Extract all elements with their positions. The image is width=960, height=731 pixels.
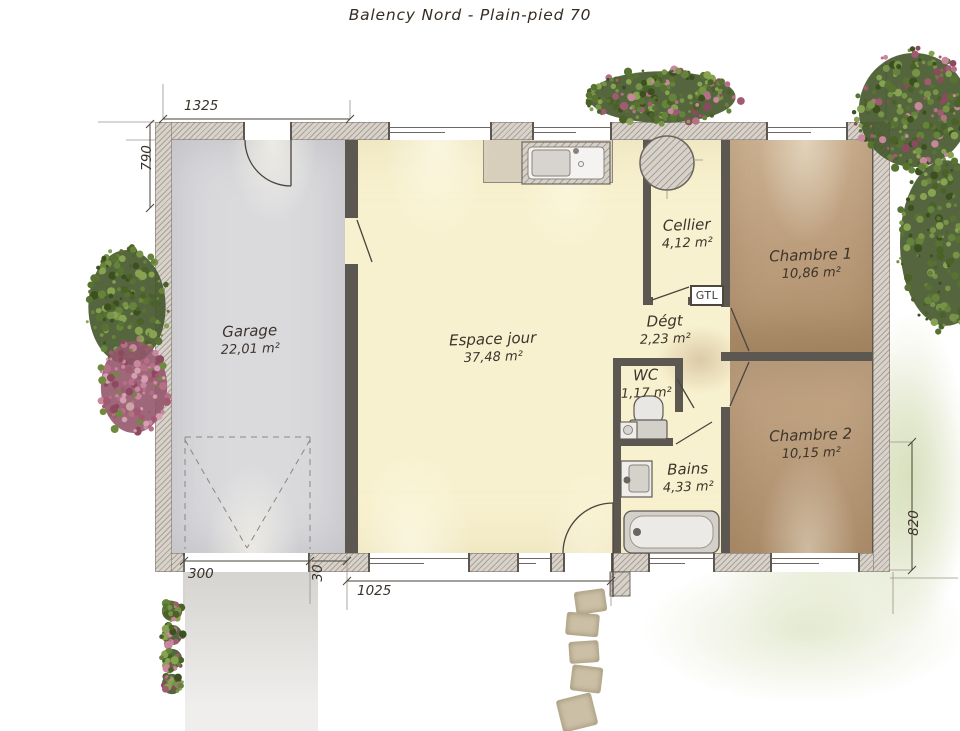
room-area: 4,33 m²	[645, 478, 732, 498]
wall-cellier-bottom	[643, 297, 653, 305]
room-label-bains: Bains 4,33 m²	[644, 459, 731, 498]
room-area: 2,23 m²	[620, 330, 711, 350]
stepping-stone	[565, 612, 600, 638]
wall-chambre-divider	[721, 352, 872, 361]
room-label-degagement: Dégt 2,23 m²	[619, 310, 710, 350]
door-gap-garage	[345, 218, 358, 264]
gtl-box: GTL	[690, 285, 724, 306]
light-glow	[545, 465, 635, 553]
window	[517, 553, 552, 572]
room-label-chambre1: Chambre 1 10,86 m²	[751, 244, 870, 284]
dimension-garage-door: 300	[188, 566, 214, 582]
kitchen-counter	[483, 140, 613, 183]
room-area: 1,17 m²	[608, 384, 685, 404]
light-glow	[758, 140, 853, 245]
wall-garage-divider	[345, 140, 358, 553]
room-name: WC	[607, 365, 684, 387]
driveway	[185, 572, 318, 731]
room-name: Chambre 1	[751, 244, 870, 268]
wall-wc-bottom	[613, 438, 673, 446]
room-area: 4,12 m²	[643, 234, 732, 254]
light-glow	[205, 462, 300, 553]
stepping-stone	[556, 692, 599, 731]
exterior-wall-left	[155, 122, 172, 572]
dimension-left: 790	[139, 141, 155, 175]
light-glow	[228, 140, 318, 225]
exterior-wall-right	[873, 122, 890, 572]
dimension-top-left: 1325	[184, 98, 218, 114]
room-label-espace-jour: Espace jour 37,48 m²	[427, 328, 558, 369]
window	[388, 122, 492, 140]
stepping-stone	[570, 664, 604, 694]
light-glow	[382, 140, 492, 240]
stepping-stone	[568, 640, 599, 664]
room-label-cellier: Cellier 4,12 m²	[642, 214, 731, 253]
entrance-step	[610, 572, 630, 596]
dimension-facade: 1025	[357, 583, 391, 599]
light-glow	[352, 450, 472, 553]
window	[532, 122, 612, 140]
light-glow	[758, 450, 858, 553]
window	[766, 122, 848, 140]
room-label-chambre2: Chambre 2 10,15 m²	[751, 424, 870, 464]
window	[648, 553, 715, 572]
page-title: Balency Nord - Plain-pied 70	[340, 6, 600, 24]
window	[770, 553, 860, 572]
dimension-right: 820	[906, 506, 922, 540]
garage-service-door-opening	[243, 122, 292, 140]
light-glow	[520, 183, 615, 253]
stepping-stone	[574, 588, 608, 615]
dimension-pier: 30	[310, 560, 326, 586]
floor-plan: GTL	[0, 0, 960, 731]
room-label-wc: WC 1,17 m²	[607, 365, 684, 404]
entrance-door-opening	[563, 553, 613, 572]
room-name: Chambre 2	[751, 424, 870, 448]
lawn-wash	[640, 555, 960, 705]
window	[368, 553, 470, 572]
room-label-garage: Garage 22,01 m²	[194, 320, 305, 360]
